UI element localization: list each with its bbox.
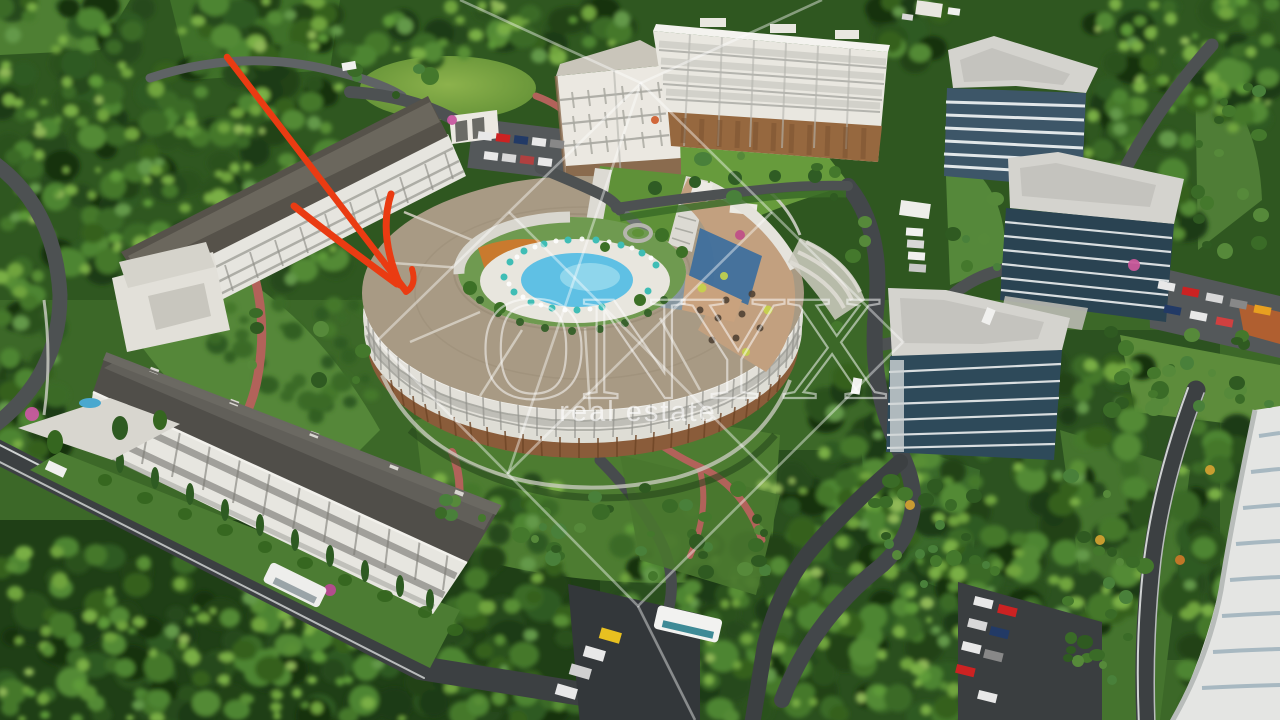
svg-text:real estate: real estate [559,396,716,428]
